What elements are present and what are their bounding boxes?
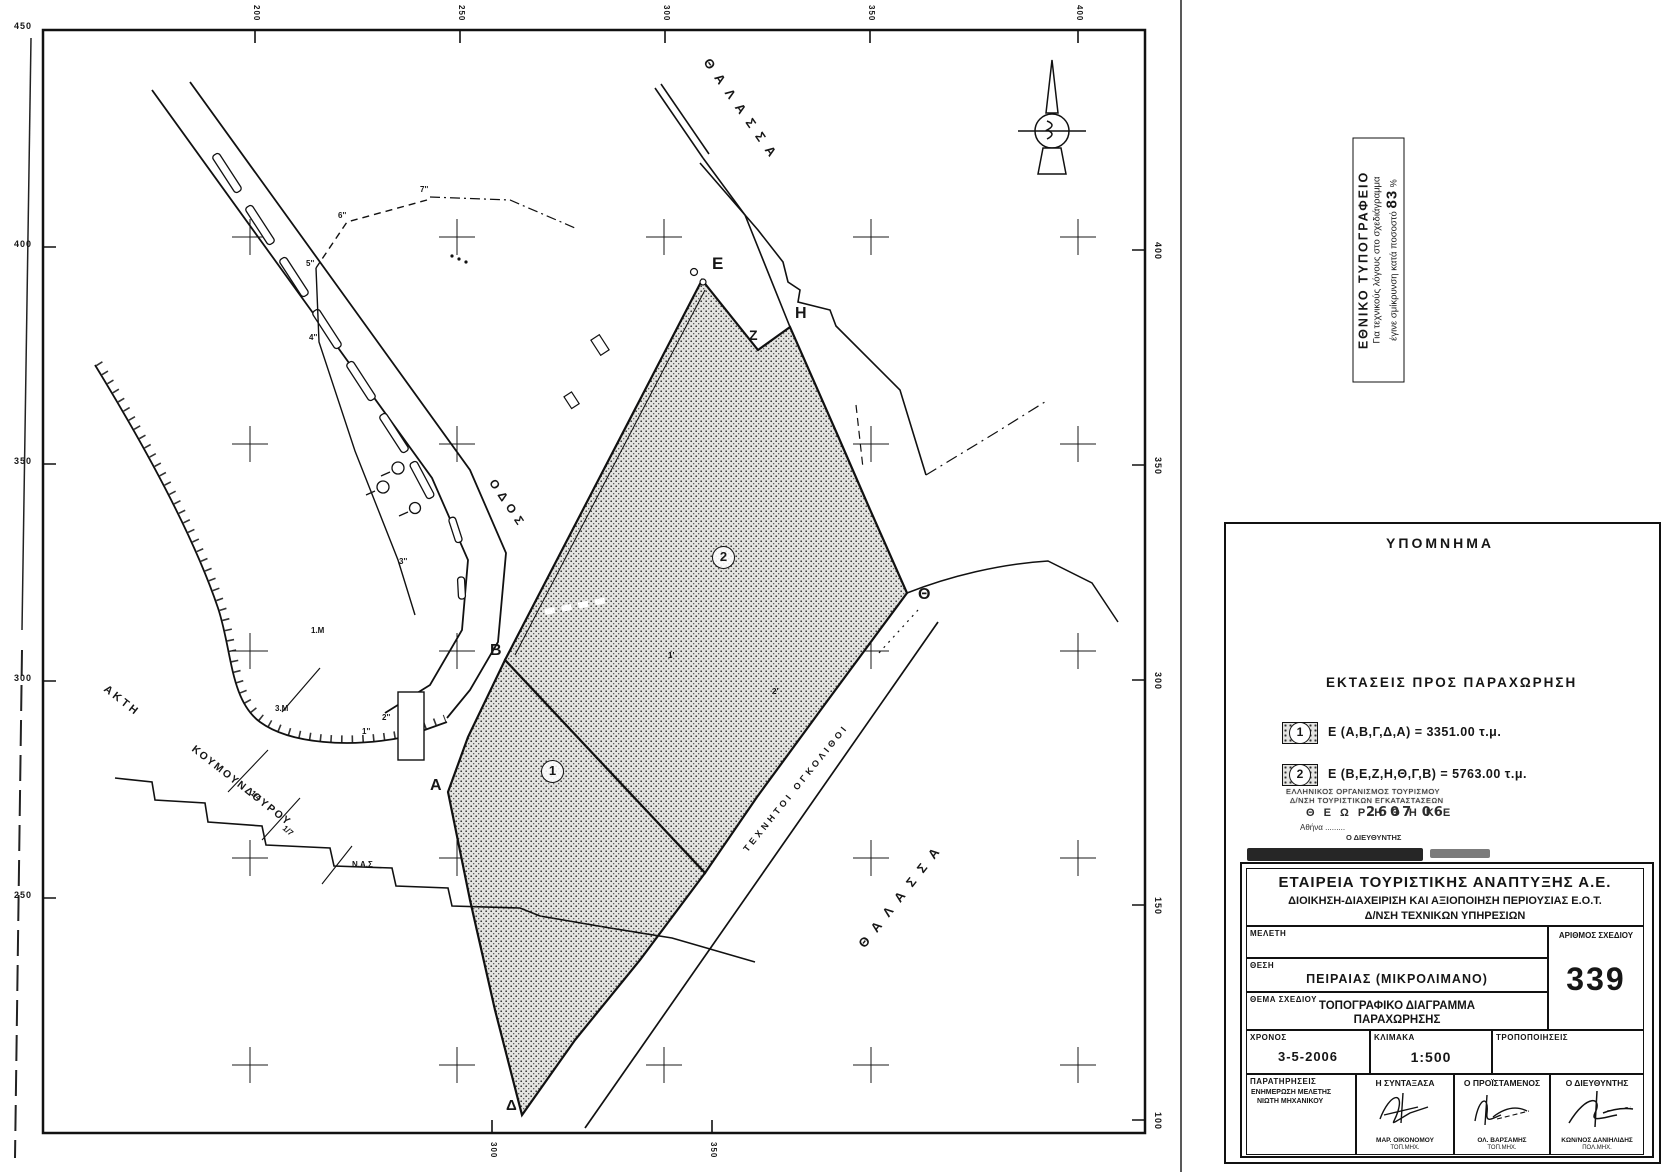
syntaxasa-label: Η ΣΥΝΤΑΞΑΣΑ bbox=[1357, 1078, 1453, 1088]
printing-note-line-2: έγινε σμίκρυνση κατά ποσοστό 83 % bbox=[1384, 139, 1401, 382]
grid-label-top-0: 200 bbox=[252, 5, 260, 21]
printing-office-note: ΕΘΝΙΚΟ ΤΥΠΟΓΡΑΦΕΙΟ Για τεχνικούς λόγους … bbox=[1353, 138, 1405, 383]
field-xronos: ΧΡΟΝΟΣ 3-5-2006 bbox=[1246, 1030, 1370, 1074]
field-arithmos: ΑΡΙΘΜΟΣ ΣΧΕΔΙΟΥ 339 bbox=[1548, 926, 1644, 1030]
legend-swatch-2: 2 bbox=[1282, 764, 1318, 786]
proistamenos-name: ΟΛ. ΒΑΡΣΑΜΗΣ bbox=[1455, 1137, 1549, 1144]
reduction-percent-value: 83 bbox=[1384, 190, 1401, 209]
dieythintis-title: ΠΟΛ.ΜΗΧ. bbox=[1551, 1145, 1643, 1151]
quay-building bbox=[398, 692, 424, 760]
field-thesi-label: ΘΕΣΗ bbox=[1250, 961, 1274, 970]
approval-org-line-2: Δ/ΝΣΗ ΤΟΥΡΙΣΤΙΚΩΝ ΕΓΚΑΤΑΣΤΑΣΕΩΝ bbox=[1290, 797, 1443, 805]
grid-label-left-1: 400 bbox=[14, 240, 32, 249]
vertex-Z: Ζ bbox=[749, 328, 758, 342]
road-right-edge bbox=[190, 82, 506, 718]
legend-section-title: ΕΚΤΑΣΕΙΣ ΠΡΟΣ ΠΑΡΑΧΩΡΗΣΗ bbox=[1326, 676, 1577, 690]
rock-dots bbox=[450, 254, 467, 263]
field-tropopoiiseis: ΤΡΟΠΟΠΟΙΗΣΕΙΣ bbox=[1492, 1030, 1644, 1074]
titleblock-header: ΕΤΑΙΡΕΙΑ ΤΟΥΡΙΣΤΙΚΗΣ ΑΝΑΠΤΥΞΗΣ Α.Ε. ΔΙΟΙ… bbox=[1246, 868, 1644, 926]
point-label: 1' bbox=[668, 652, 674, 660]
legend-item-1-text: Ε (Α,Β,Γ,Δ,Α) = 3351.00 τ.μ. bbox=[1328, 726, 1501, 739]
field-thema: ΘΕΜΑ ΣΧΕΔΙΟΥ ΤΟΠΟΓΡΑΦΙΚΟ ΔΙΑΓΡΑΜΜΑ ΠΑΡΑΧ… bbox=[1246, 992, 1548, 1030]
grid-label-left-4: 250 bbox=[14, 891, 32, 900]
paper-edge-left-dashed bbox=[15, 650, 22, 1158]
cell-proistamenos: Ο ΠΡΟΪΣΤΑΜΕΝΟΣ ΟΛ. ΒΑΡΣΑΜΗΣ ΤΟΠ.ΜΗΧ. bbox=[1454, 1074, 1550, 1155]
grid-label-left-3: 300 bbox=[14, 674, 32, 683]
signature-proistamenos bbox=[1467, 1089, 1537, 1127]
cell-dieythintis: Ο ΔΙΕΥΘΥΝΤΗΣ ΚΩΝ/ΝΟΣ ΔΑΝΙΗΛΙΔΗΣ ΠΟΛ.ΜΗΧ. bbox=[1550, 1074, 1644, 1155]
field-thesi-value: ΠΕΙΡΑΙΑΣ (ΜΙΚΡΟΛΙΜΑΝΟ) bbox=[1247, 972, 1547, 986]
field-xronos-value: 3-5-2006 bbox=[1247, 1049, 1369, 1064]
field-thesi: ΘΕΣΗ ΠΕΙΡΑΙΑΣ (ΜΙΚΡΟΛΙΜΑΝΟ) bbox=[1246, 958, 1548, 992]
vertex-B: Β bbox=[490, 643, 502, 659]
tip-mark-1 bbox=[691, 269, 698, 276]
proistamenos-title: ΤΟΠ.ΜΗΧ. bbox=[1455, 1145, 1549, 1151]
field-thema-value-1: ΤΟΠΟΓΡΑΦΙΚΟ ΔΙΑΓΡΑΜΜΑ bbox=[1247, 1000, 1547, 1012]
field-meleti: ΜΕΛΕΤΗ bbox=[1246, 926, 1548, 958]
coast-dashdot-branch bbox=[926, 400, 1048, 475]
field-klimaka: ΚΛΙΜΑΚΑ 1:500 bbox=[1370, 1030, 1492, 1074]
org-line-2: ΔΙΟΙΚΗΣΗ-ΔΙΑΧΕΙΡΙΣΗ ΚΑΙ ΑΞΙΟΠΟΙΗΣΗ ΠΕΡΙΟ… bbox=[1247, 895, 1643, 907]
grid-label-top-3: 350 bbox=[867, 5, 875, 21]
point-label: 4'' bbox=[309, 334, 317, 342]
printing-note-line-2-text: έγινε σμίκρυνση κατά ποσοστό bbox=[1389, 211, 1400, 341]
percent-sign: % bbox=[1389, 179, 1399, 187]
field-paratiriseis: ΠΑΡΑΤΗΡΗΣΕΙΣ ΕΝΗΜΕΡΩΣΗ ΜΕΛΕΤΗΣ ΝΙΩΤΗ ΜΗΧ… bbox=[1246, 1074, 1356, 1155]
grid-label-top-1: 250 bbox=[457, 5, 465, 21]
dieythintis-label: Ο ΔΙΕΥΘΥΝΤΗΣ bbox=[1551, 1078, 1643, 1088]
breakwater-double-b bbox=[661, 84, 709, 154]
field-arithmos-label: ΑΡΙΘΜΟΣ ΣΧΕΔΙΟΥ bbox=[1549, 931, 1643, 940]
point-label: Ν.Α.Σ bbox=[352, 861, 373, 869]
vertex-E: Ε bbox=[712, 255, 723, 272]
legend-title: ΥΠΟΜΝΗΜΑ bbox=[1386, 536, 1494, 550]
printing-office-title: ΕΘΝΙΚΟ ΤΥΠΟΓΡΑΦΕΙΟ bbox=[1357, 139, 1371, 382]
vertex-TH: Θ bbox=[918, 587, 930, 603]
paper-edge-left bbox=[22, 38, 31, 630]
point-label: 2' bbox=[772, 688, 778, 696]
syntaxasa-title: ΤΟΠ.ΜΗΧ. bbox=[1357, 1145, 1453, 1151]
dieythintis-name: ΚΩΝ/ΝΟΣ ΔΑΝΙΗΛΙΔΗΣ bbox=[1551, 1137, 1643, 1144]
vertex-D: Δ bbox=[506, 1098, 517, 1113]
quay-hachures bbox=[99, 363, 445, 739]
org-line-1: ΕΤΑΙΡΕΙΑ ΤΟΥΡΙΣΤΙΚΗΣ ΑΝΑΠΤΥΞΗΣ Α.Ε. bbox=[1247, 874, 1643, 891]
coast-near-theta bbox=[907, 561, 1118, 622]
field-klimaka-value: 1:500 bbox=[1371, 1049, 1491, 1065]
grid-label-right-0: 400 bbox=[1153, 242, 1162, 260]
kiosk-1 bbox=[591, 335, 609, 356]
mooring-dashes bbox=[856, 405, 863, 468]
grid-label-right-1: 350 bbox=[1153, 457, 1162, 475]
legend-item-2-text: Ε (Β,Ε,Ζ,Η,Θ,Γ,Β) = 5763.00 τ.μ. bbox=[1328, 768, 1527, 781]
grid-label-left-2: 350 bbox=[14, 457, 32, 466]
pier-dashed bbox=[316, 200, 427, 268]
legend-swatch-2-number: 2 bbox=[1289, 764, 1311, 786]
paratiriseis-line-2: ΝΙΩΤΗ ΜΗΧΑΝΙΚΟΥ bbox=[1247, 1098, 1355, 1105]
point-label: 3.Μ bbox=[275, 705, 288, 713]
quay-line bbox=[95, 365, 447, 743]
grid-label-top-4: 400 bbox=[1075, 5, 1083, 21]
proistamenos-label: Ο ΠΡΟΪΣΤΑΜΕΝΟΣ bbox=[1455, 1078, 1549, 1088]
point-label: 5'' bbox=[306, 260, 314, 268]
grid-label-bottom-1: 350 bbox=[709, 1142, 717, 1158]
tip-mark-2 bbox=[700, 279, 706, 285]
cell-syntaxasa: Η ΣΥΝΤΑΞΑΣΑ ΜΑΡ. ΟΙΚΟΝΟΜΟΥ ΤΟΠ.ΜΗΧ. bbox=[1356, 1074, 1454, 1155]
point-label: 1.Μ bbox=[311, 627, 324, 635]
point-label: 3'' bbox=[399, 558, 407, 566]
kiosk-2 bbox=[564, 392, 579, 409]
point-label: 7'' bbox=[420, 186, 428, 194]
field-klimaka-label: ΚΛΙΜΑΚΑ bbox=[1374, 1033, 1415, 1042]
legend-swatch-1-number: 1 bbox=[1289, 722, 1311, 744]
vertex-A: Α bbox=[430, 778, 442, 794]
legend-swatch-1: 1 bbox=[1282, 722, 1318, 744]
printing-note-line-1: Για τεχνικούς λόγους στο σχεδιάγραμμα bbox=[1372, 139, 1383, 382]
area-2-badge: 2 bbox=[712, 546, 735, 569]
scanned-topographic-sheet: { "map": { "grid": { "left": ["450","400… bbox=[0, 0, 1665, 1172]
title-block: ΕΤΑΙΡΕΙΑ ΤΟΥΡΙΣΤΙΚΗΣ ΑΝΑΠΤΥΞΗΣ Α.Ε. ΔΙΟΙ… bbox=[1240, 862, 1654, 1158]
drawing-number: 339 bbox=[1549, 961, 1643, 998]
breakwater-double-a bbox=[655, 88, 703, 158]
grid-label-right-4: 100 bbox=[1153, 1112, 1162, 1130]
signature-syntaxasa bbox=[1370, 1089, 1440, 1127]
field-tropopoiiseis-label: ΤΡΟΠΟΠΟΙΗΣΕΙΣ bbox=[1496, 1033, 1568, 1042]
grid-label-right-3: 150 bbox=[1153, 897, 1162, 915]
approval-signer-title: Ο ΔΙΕΥΘΥΝΤΗΣ bbox=[1346, 834, 1401, 842]
area-1-badge: 1 bbox=[541, 760, 564, 783]
point-label: 1'' bbox=[362, 728, 370, 736]
field-thema-value-2: ΠΑΡΑΧΩΡΗΣΗΣ bbox=[1247, 1014, 1547, 1026]
syntaxasa-name: ΜΑΡ. ΟΙΚΟΝΟΜΟΥ bbox=[1357, 1137, 1453, 1144]
smudged-text-bar bbox=[1247, 848, 1423, 861]
org-line-3: Δ/ΝΣΗ ΤΕΧΝΙΚΩΝ ΥΠΗΡΕΣΙΩΝ bbox=[1247, 910, 1643, 922]
point-label: 6'' bbox=[338, 212, 346, 220]
grid-label-top-2: 300 bbox=[662, 5, 670, 21]
point-label: 2'' bbox=[382, 714, 390, 722]
signature-dieythintis bbox=[1557, 1089, 1637, 1127]
paratiriseis-line-1: ΕΝΗΜΕΡΩΣΗ ΜΕΛΕΤΗΣ bbox=[1247, 1089, 1355, 1096]
grid-label-left-0: 450 bbox=[14, 22, 32, 31]
smudged-text-bar-2 bbox=[1430, 849, 1490, 858]
pier-dashdot bbox=[430, 197, 575, 228]
field-meleti-label: ΜΕΛΕΤΗ bbox=[1250, 929, 1286, 938]
north-arrow-icon bbox=[1018, 60, 1086, 174]
field-paratiriseis-label: ΠΑΡΑΤΗΡΗΣΕΙΣ bbox=[1250, 1077, 1316, 1086]
field-xronos-label: ΧΡΟΝΟΣ bbox=[1250, 1033, 1287, 1042]
approval-org-line-1: ΕΛΛΗΝΙΚΟΣ ΟΡΓΑΝΙΣΜΟΣ ΤΟΥΡΙΣΜΟΥ bbox=[1286, 788, 1440, 796]
vertex-H: Η bbox=[795, 306, 807, 322]
grid-label-bottom-0: 300 bbox=[489, 1142, 497, 1158]
grid-label-right-2: 300 bbox=[1153, 672, 1162, 690]
approval-place: Αθήνα ......... bbox=[1300, 824, 1345, 832]
approval-date-handwritten: 2607 06 bbox=[1366, 806, 1446, 819]
